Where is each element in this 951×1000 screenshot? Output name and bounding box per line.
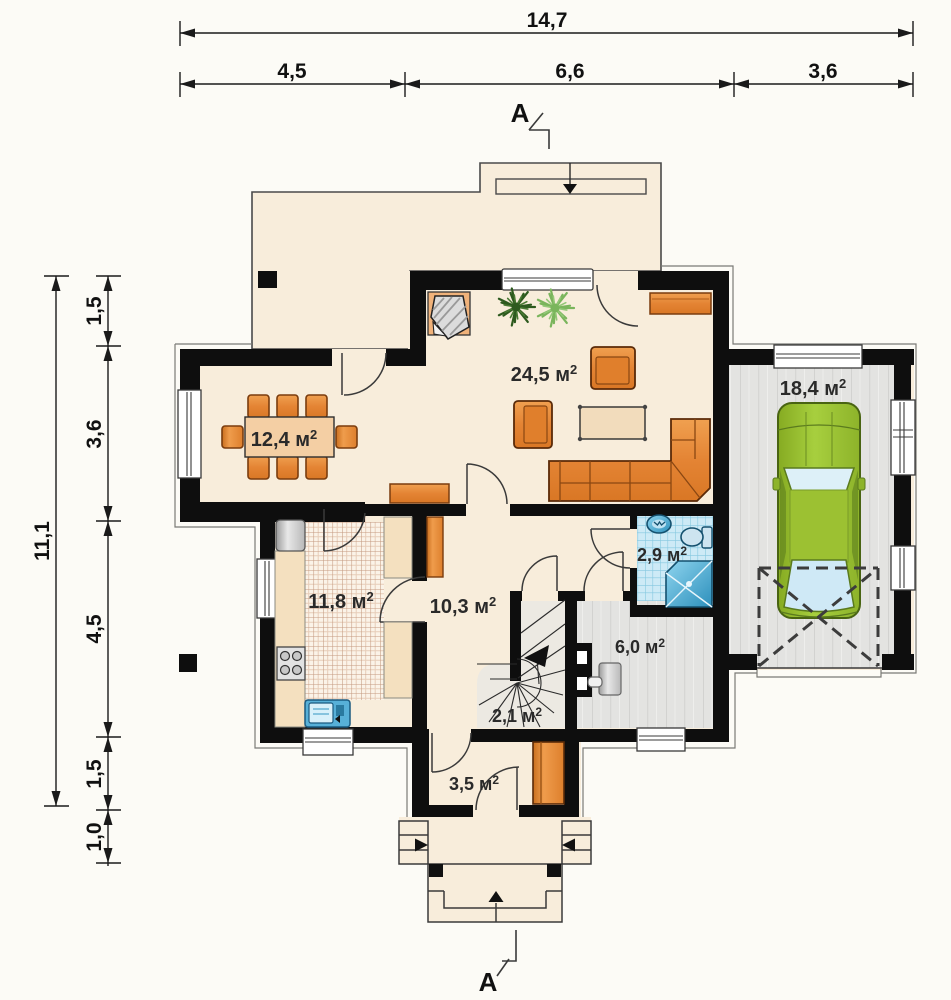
svg-text:A: A [479,967,498,997]
svg-text:18,4 м2: 18,4 м2 [780,376,847,400]
svg-text:12,4 м2: 12,4 м2 [251,427,318,451]
svg-text:3,6: 3,6 [808,60,837,83]
svg-text:6,6: 6,6 [555,60,584,83]
svg-text:4,5: 4,5 [277,60,307,83]
svg-text:1,0: 1,0 [83,822,106,851]
svg-text:1,5: 1,5 [83,759,106,789]
svg-text:10,3 м2: 10,3 м2 [430,594,497,618]
svg-text:24,5 м2: 24,5 м2 [511,362,578,386]
svg-text:1,5: 1,5 [83,296,106,326]
svg-text:11,8 м2: 11,8 м2 [308,589,373,613]
svg-text:3,5 м2: 3,5 м2 [449,773,499,794]
svg-text:2,9 м2: 2,9 м2 [637,544,687,565]
svg-text:11,1: 11,1 [31,521,54,561]
svg-text:A: A [511,98,530,128]
svg-text:14,7: 14,7 [527,9,568,32]
svg-text:6,0 м2: 6,0 м2 [615,636,665,657]
svg-text:2,1 м2: 2,1 м2 [492,705,542,726]
svg-text:3,6: 3,6 [83,419,106,448]
svg-text:4,5: 4,5 [83,614,106,644]
